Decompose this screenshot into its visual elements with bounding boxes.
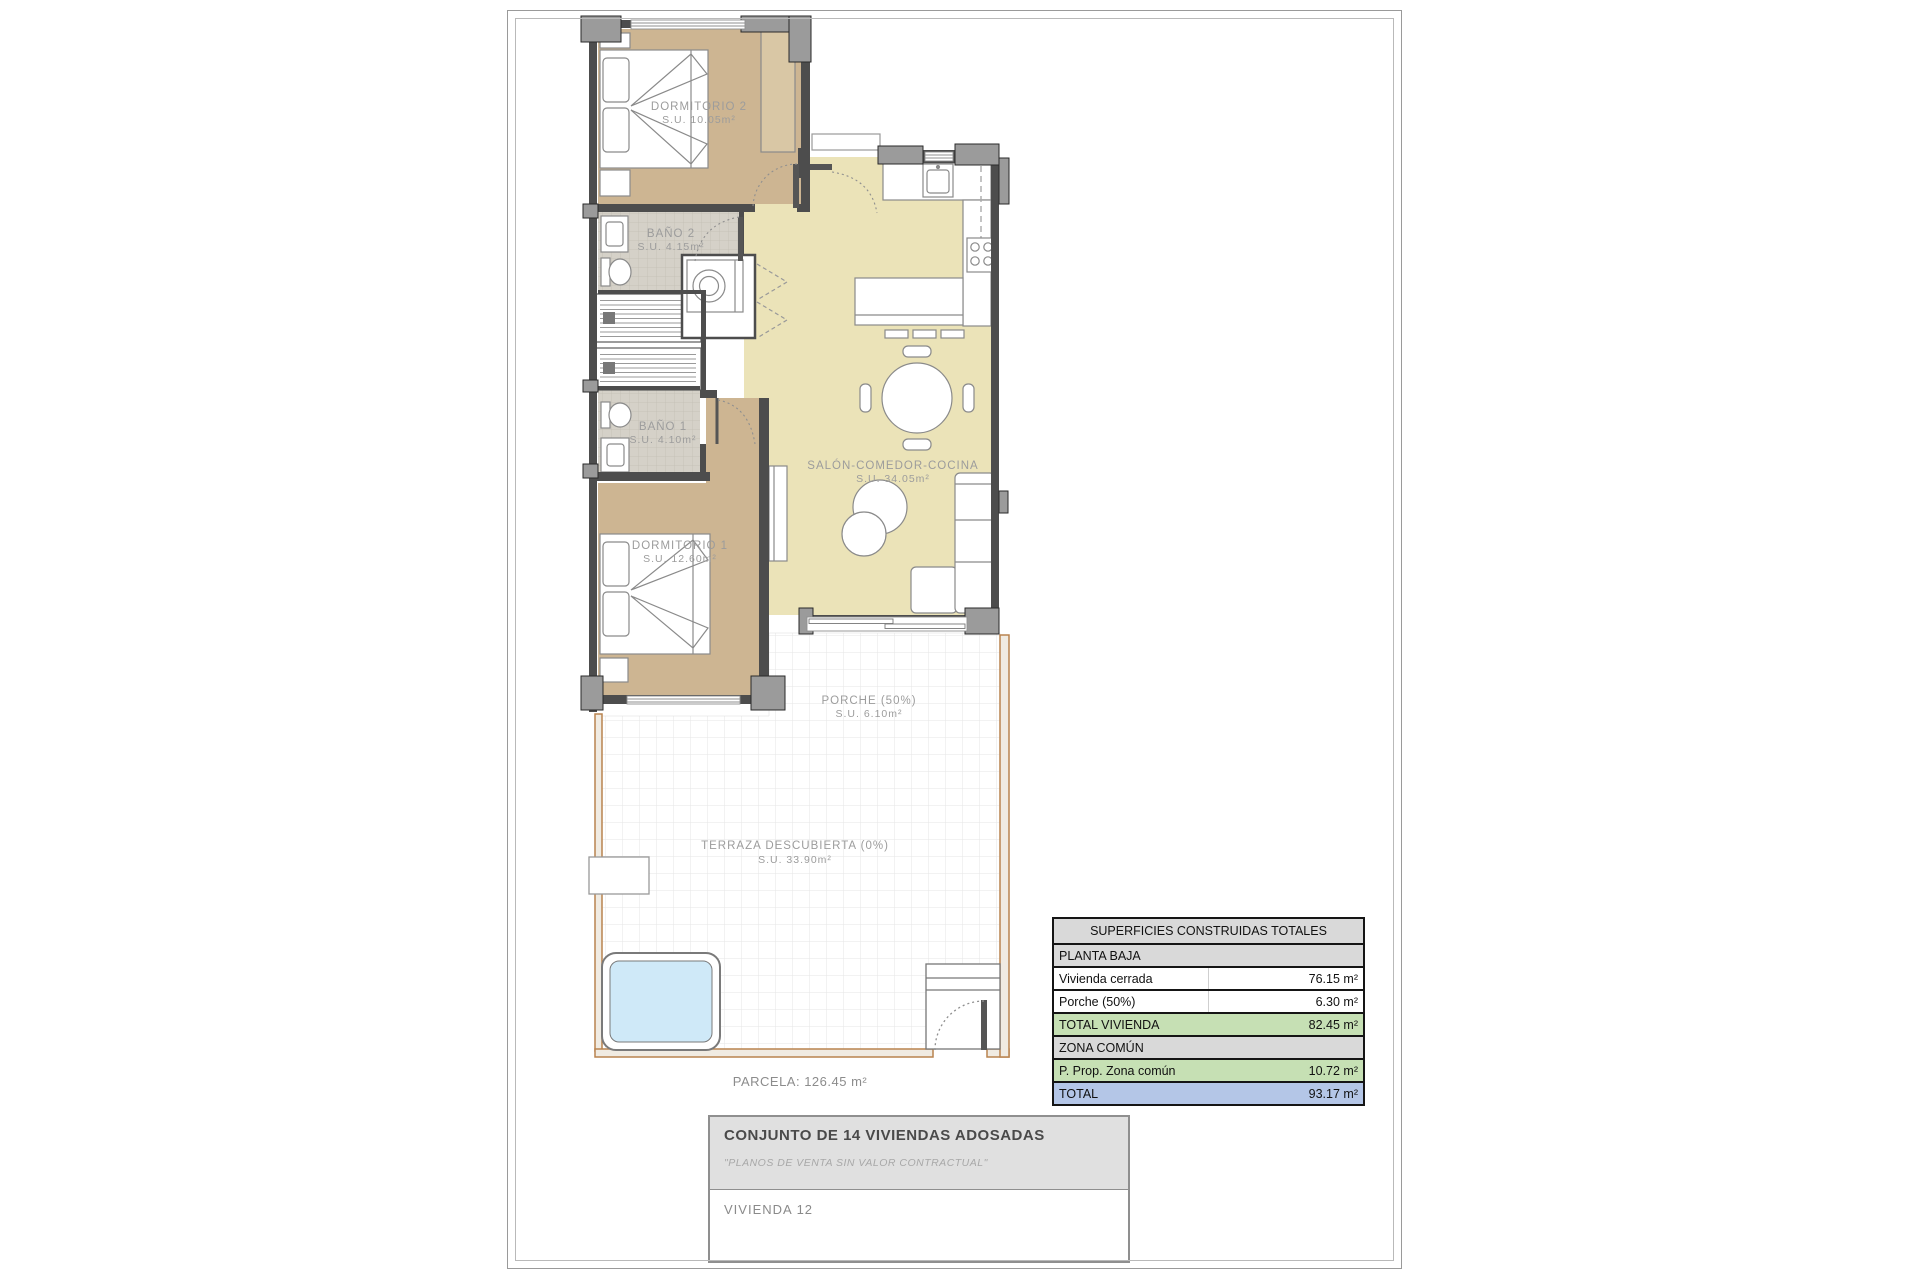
plan-sheet: DORMITORIO 2 S.U. 10.05m² BAÑO 2 S.U. 4.… (503, 6, 1406, 1273)
label-terraza-area: S.U. 33.90m² (758, 854, 832, 866)
row-total-label: TOTAL (1053, 1082, 1209, 1105)
label-dormitorio1-name: DORMITORIO 1 (632, 540, 728, 552)
coffee-table-small (842, 512, 886, 556)
project-title: CONJUNTO DE 14 VIVIENDAS ADOSADAS (724, 1127, 1114, 1144)
title-block: CONJUNTO DE 14 VIVIENDAS ADOSADAS "PLANO… (708, 1115, 1130, 1263)
areas-table: SUPERFICIES CONSTRUIDAS TOTALES PLANTA B… (1052, 917, 1365, 1106)
hall-wardrobe-2 (595, 348, 701, 390)
row-porche-label: Porche (50%) (1053, 990, 1209, 1013)
areas-table-row-zona-comun: ZONA COMÚN (1053, 1036, 1364, 1059)
salon-sliding-door (807, 617, 967, 631)
row-total-vivienda-value: 82.45 m² (1209, 1013, 1365, 1036)
kitchen-window (925, 152, 953, 161)
unit-name: VIVIENDA 12 (710, 1190, 1128, 1229)
terraza-gate (926, 964, 1000, 1050)
label-salon-area: S.U. 34.05m² (856, 473, 930, 485)
label-bano2-name: BAÑO 2 (647, 227, 695, 240)
pool (602, 953, 720, 1050)
title-block-header: CONJUNTO DE 14 VIVIENDAS ADOSADAS "PLANO… (710, 1117, 1128, 1190)
dormitorio2-window (631, 20, 745, 29)
table-row: P. Prop. Zona común 10.72 m² (1053, 1059, 1364, 1082)
label-bano1-area: S.U. 4.10m² (629, 434, 696, 446)
label-dormitorio2-area: S.U. 10.05m² (662, 114, 736, 126)
row-zona-comun-label: P. Prop. Zona común (1053, 1059, 1209, 1082)
table-row: Vivienda cerrada 76.15 m² (1053, 967, 1364, 990)
table-row: TOTAL 93.17 m² (1053, 1082, 1364, 1105)
row-zona-comun-value: 10.72 m² (1209, 1059, 1365, 1082)
parcela-label: PARCELA: 126.45 m² (650, 1074, 950, 1089)
tv-cabinet (769, 466, 787, 561)
kitchen-sink (923, 164, 953, 197)
row-porche-value: 6.30 m² (1209, 990, 1365, 1013)
row-total-value: 93.17 m² (1209, 1082, 1365, 1105)
bano2-sink (601, 216, 628, 252)
label-porche-area: S.U. 6.10m² (835, 708, 902, 720)
label-dormitorio1-area: S.U. 12.60m² (643, 553, 717, 565)
label-terraza-name: TERRAZA DESCUBIERTA (0%) (701, 840, 889, 852)
bano1-toilet (601, 402, 631, 428)
table-row: Porche (50%) 6.30 m² (1053, 990, 1364, 1013)
label-bano1-name: BAÑO 1 (639, 420, 687, 433)
row-total-vivienda-label: TOTAL VIVIENDA (1053, 1013, 1209, 1036)
areas-table-title: SUPERFICIES CONSTRUIDAS TOTALES (1053, 918, 1364, 944)
table-row: TOTAL VIVIENDA 82.45 m² (1053, 1013, 1364, 1036)
row-vivienda-cerrada-label: Vivienda cerrada (1053, 967, 1209, 990)
row-vivienda-cerrada-value: 76.15 m² (1209, 967, 1365, 990)
bano2-toilet (601, 258, 631, 286)
page: { "rooms": { "dormitorio2": {"name": "DO… (0, 0, 1920, 1280)
label-salon-name: SALÓN-COMEDOR-COCINA (807, 459, 978, 472)
label-bano2-area: S.U. 4.15m² (637, 241, 704, 253)
label-porche-name: PORCHE (50%) (821, 695, 916, 707)
disclaimer-text: "PLANOS DE VENTA SIN VALOR CONTRACTUAL" (724, 1157, 1114, 1169)
bano1-sink (601, 438, 629, 472)
entry-step (812, 134, 880, 150)
label-dormitorio2-name: DORMITORIO 2 (651, 101, 747, 113)
areas-table-row-planta-baja: PLANTA BAJA (1053, 944, 1364, 967)
dormitorio1-window (627, 696, 740, 704)
terraza-step (589, 857, 649, 894)
